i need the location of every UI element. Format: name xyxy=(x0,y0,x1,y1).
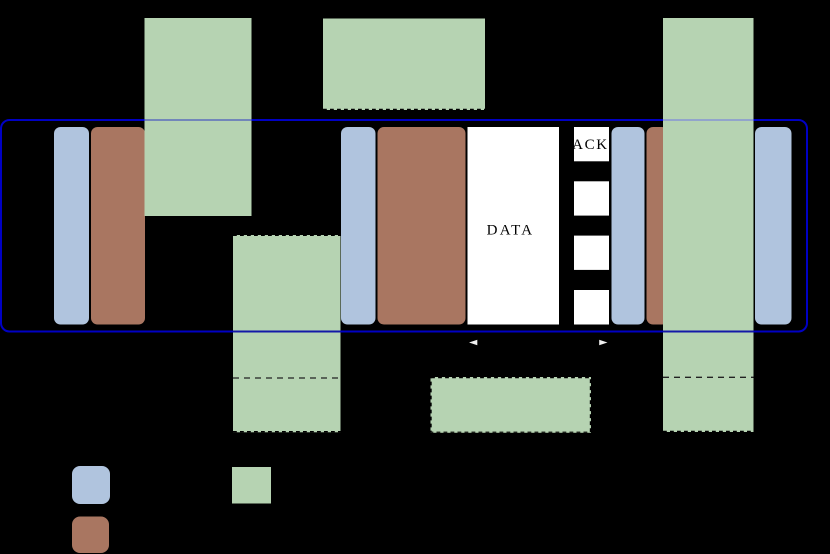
svg-text:ACK: ACK xyxy=(572,137,607,153)
